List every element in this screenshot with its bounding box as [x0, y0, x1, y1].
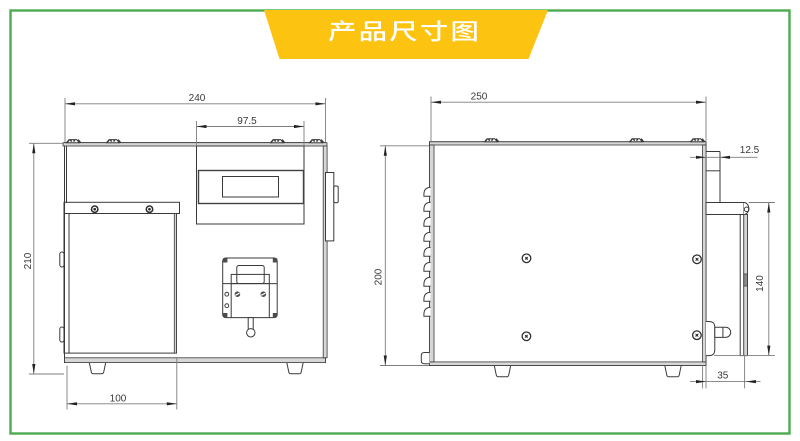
svg-text:140: 140 [755, 275, 766, 292]
svg-text:250: 250 [471, 92, 488, 103]
svg-text:210: 210 [23, 252, 34, 269]
svg-text:35: 35 [717, 370, 729, 381]
svg-text:100: 100 [110, 393, 127, 404]
svg-text:200: 200 [374, 268, 385, 285]
svg-text:240: 240 [189, 93, 206, 104]
svg-text:12.5: 12.5 [740, 145, 760, 156]
svg-text:97.5: 97.5 [237, 116, 257, 127]
